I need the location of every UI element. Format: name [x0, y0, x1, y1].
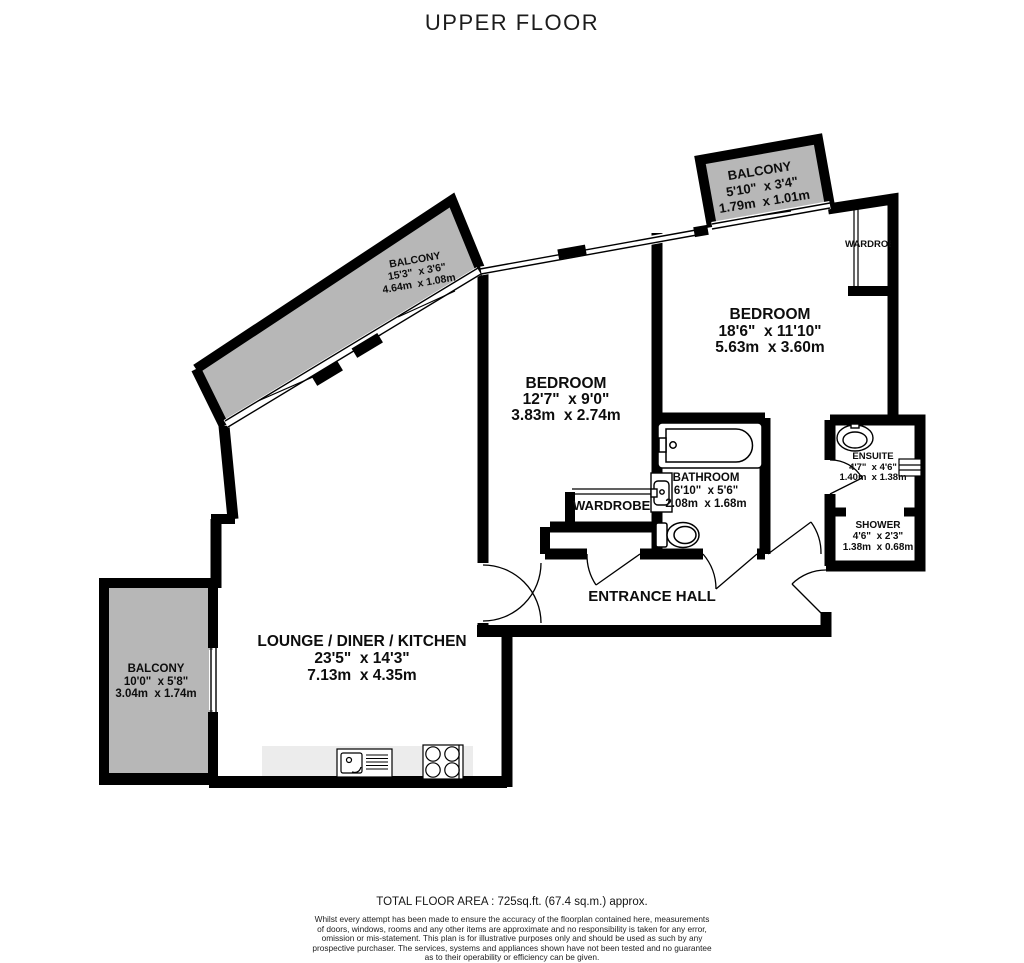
room-metric: 3.83m x 2.74m — [476, 408, 656, 424]
floorplan-page: UPPER FLOOR — [0, 0, 1024, 963]
room-metric: 1.40m x 1.38m — [813, 473, 933, 484]
hob-icon — [423, 745, 463, 779]
ensuite-sink-icon — [837, 424, 873, 451]
label-balcony-left: BALCONY 10'0" x 5'8" 3.04m x 1.74m — [86, 663, 226, 701]
label-bathroom: BATHROOM 6'10" x 5'6" 2.08m x 1.68m — [631, 472, 781, 511]
room-imperial: 18'6" x 11'10" — [670, 324, 870, 341]
label-wardrobe-hall: WARDROBE — [573, 499, 651, 515]
label-shower: SHOWER 4'6" x 2'3" 1.38m x 0.68m — [818, 521, 938, 553]
room-imperial: 4'6" x 2'3" — [818, 532, 938, 543]
room-metric: 1.38m x 0.68m — [818, 543, 938, 554]
room-metric: 3.04m x 1.74m — [86, 688, 226, 701]
total-floor-area: TOTAL FLOOR AREA : 725sq.ft. (67.4 sq.m.… — [0, 896, 1024, 908]
room-name: ENTRANCE HALL — [542, 589, 762, 604]
label-wardrobe-main: WARDROBE — [845, 240, 891, 252]
room-name: BATHROOM — [631, 472, 781, 485]
room-imperial: 23'5" x 14'3" — [227, 650, 497, 667]
disclaimer: Whilst every attempt has been made to en… — [0, 915, 1024, 963]
room-name: WARDROBE — [573, 499, 651, 512]
room-metric: 2.08m x 1.68m — [631, 498, 781, 511]
room-metric: 7.13m x 4.35m — [227, 667, 497, 684]
label-bedroom-main: BEDROOM 18'6" x 11'10" 5.63m x 3.60m — [670, 307, 870, 357]
kitchen-sink-icon — [337, 749, 392, 777]
room-imperial: 10'0" x 5'8" — [86, 676, 226, 689]
label-lounge: LOUNGE / DINER / KITCHEN 23'5" x 14'3" 7… — [227, 633, 497, 684]
toilet-icon — [656, 523, 699, 548]
bathtub-icon — [658, 423, 762, 468]
room-name: BEDROOM — [476, 376, 656, 392]
room-name: ENSUITE — [813, 452, 933, 463]
label-ensuite: ENSUITE 4'7" x 4'6" 1.40m x 1.38m — [813, 452, 933, 484]
room-name: LOUNGE / DINER / KITCHEN — [227, 633, 497, 650]
room-imperial: 6'10" x 5'6" — [631, 485, 781, 498]
label-entrance-hall: ENTRANCE HALL — [542, 589, 762, 604]
room-imperial: 12'7" x 9'0" — [476, 392, 656, 408]
room-name: WARDROBE — [845, 240, 891, 250]
room-metric: 5.63m x 3.60m — [670, 340, 870, 357]
room-name: BALCONY — [86, 663, 226, 676]
room-name: BEDROOM — [670, 307, 870, 324]
label-bedroom-second: BEDROOM 12'7" x 9'0" 3.83m x 2.74m — [476, 376, 656, 424]
